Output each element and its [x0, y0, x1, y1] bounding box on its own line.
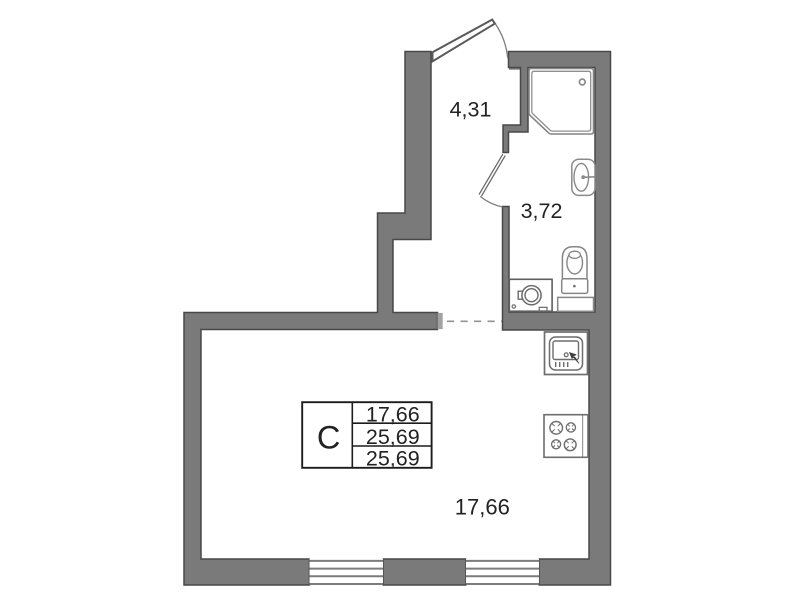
svg-text:3,72: 3,72: [521, 199, 563, 223]
svg-text:17,66: 17,66: [366, 402, 420, 426]
svg-text:17,66: 17,66: [455, 495, 510, 520]
svg-text:С: С: [317, 420, 340, 456]
svg-text:4,31: 4,31: [450, 98, 492, 122]
svg-text:25,69: 25,69: [366, 447, 420, 471]
svg-text:25,69: 25,69: [366, 425, 420, 449]
